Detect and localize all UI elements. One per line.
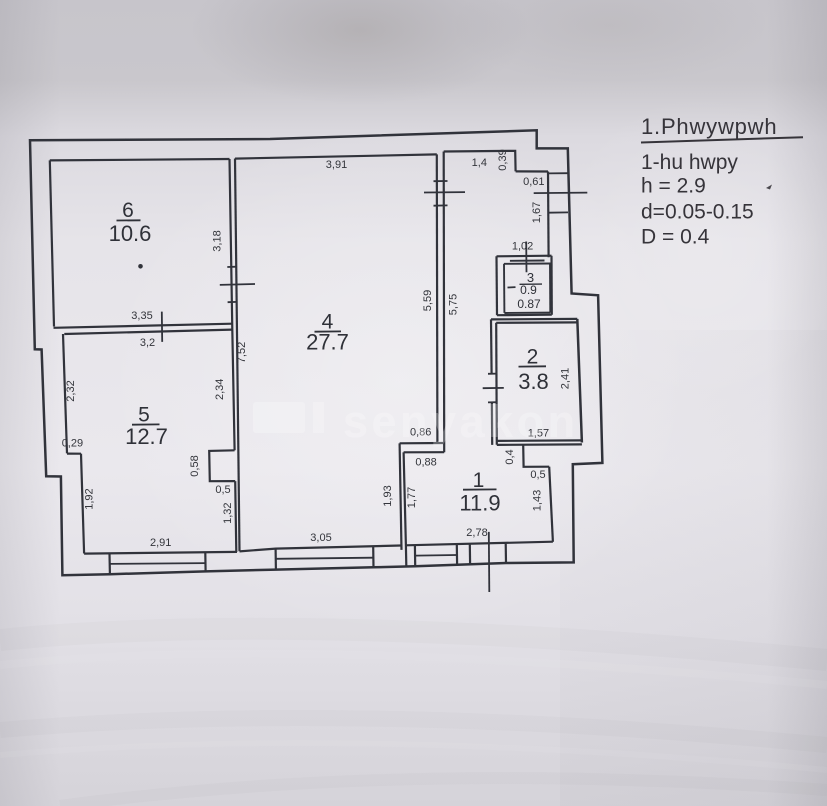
- svg-text:1: 1: [473, 469, 485, 492]
- svg-text:12.7: 12.7: [125, 424, 168, 449]
- svg-text:senyakon: senyakon: [343, 396, 579, 447]
- svg-text:h = 2.9: h = 2.9: [641, 175, 706, 198]
- svg-text:3,35: 3,35: [131, 310, 152, 322]
- svg-text:0,61: 0,61: [523, 176, 544, 188]
- svg-text:1,32: 1,32: [222, 502, 234, 523]
- svg-text:1,92: 1,92: [84, 488, 96, 509]
- svg-text:6: 6: [122, 199, 134, 222]
- svg-text:1,93: 1,93: [382, 485, 394, 506]
- svg-text:10.6: 10.6: [109, 221, 152, 246]
- svg-text:0,29: 0,29: [62, 437, 83, 449]
- svg-text:3,05: 3,05: [310, 532, 331, 544]
- svg-text:2,34: 2,34: [214, 379, 226, 400]
- svg-text:0,5: 0,5: [530, 469, 545, 481]
- svg-text:0.87: 0.87: [517, 297, 541, 311]
- svg-text:1,02: 1,02: [512, 241, 533, 253]
- svg-text:3,2: 3,2: [140, 337, 155, 349]
- svg-text:1,77: 1,77: [406, 487, 418, 508]
- svg-text:1,4: 1,4: [472, 157, 487, 169]
- svg-text:3,91: 3,91: [326, 159, 347, 171]
- svg-text:27.7: 27.7: [306, 330, 349, 355]
- svg-text:2,78: 2,78: [466, 527, 487, 539]
- svg-text:0,39: 0,39: [497, 149, 509, 170]
- svg-text:1.Phwywpwh: 1.Phwywpwh: [641, 114, 777, 139]
- svg-text:D = 0.4: D = 0.4: [641, 226, 710, 249]
- svg-text:0,58: 0,58: [189, 455, 201, 476]
- svg-text:d=0.05-0.15: d=0.05-0.15: [641, 201, 754, 224]
- svg-text:11.9: 11.9: [459, 491, 500, 516]
- svg-text:0.9: 0.9: [520, 283, 537, 297]
- svg-text:3.8: 3.8: [518, 369, 549, 394]
- svg-text:5,59: 5,59: [422, 290, 434, 311]
- svg-text:5,75: 5,75: [448, 294, 460, 315]
- svg-text:2,32: 2,32: [65, 380, 77, 401]
- svg-text:2,41: 2,41: [560, 368, 572, 389]
- svg-text:7,52: 7,52: [236, 342, 248, 363]
- svg-text:0,5: 0,5: [215, 484, 230, 496]
- svg-text:2,91: 2,91: [150, 537, 171, 549]
- svg-text:1,67: 1,67: [531, 202, 543, 223]
- svg-text:0,4: 0,4: [504, 449, 516, 464]
- svg-text:0,88: 0,88: [415, 456, 436, 468]
- svg-text:1,43: 1,43: [532, 490, 544, 511]
- svg-text:2: 2: [527, 346, 539, 369]
- svg-text:1-hu hwpy: 1-hu hwpy: [641, 151, 738, 174]
- svg-text:3,18: 3,18: [212, 230, 224, 251]
